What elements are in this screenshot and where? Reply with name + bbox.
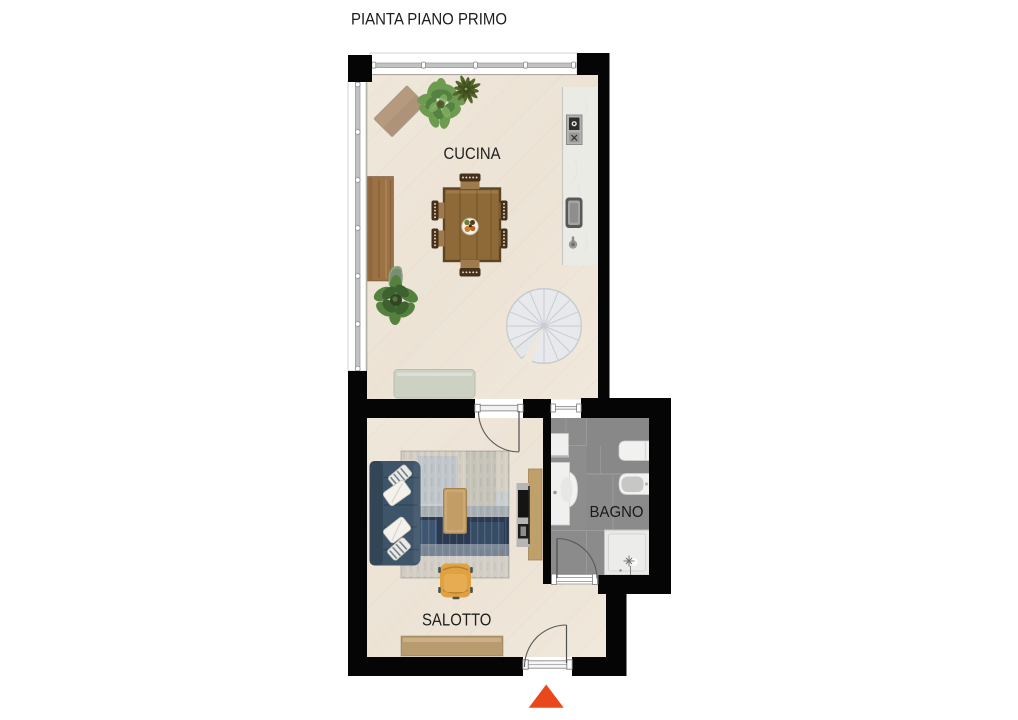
svg-text:SALOTTO: SALOTTO <box>422 610 492 630</box>
svg-text:BAGNO: BAGNO <box>590 504 644 521</box>
svg-text:PIANTA PIANO PRIMO: PIANTA PIANO PRIMO <box>351 10 507 29</box>
svg-text:CUCINA: CUCINA <box>444 145 501 163</box>
